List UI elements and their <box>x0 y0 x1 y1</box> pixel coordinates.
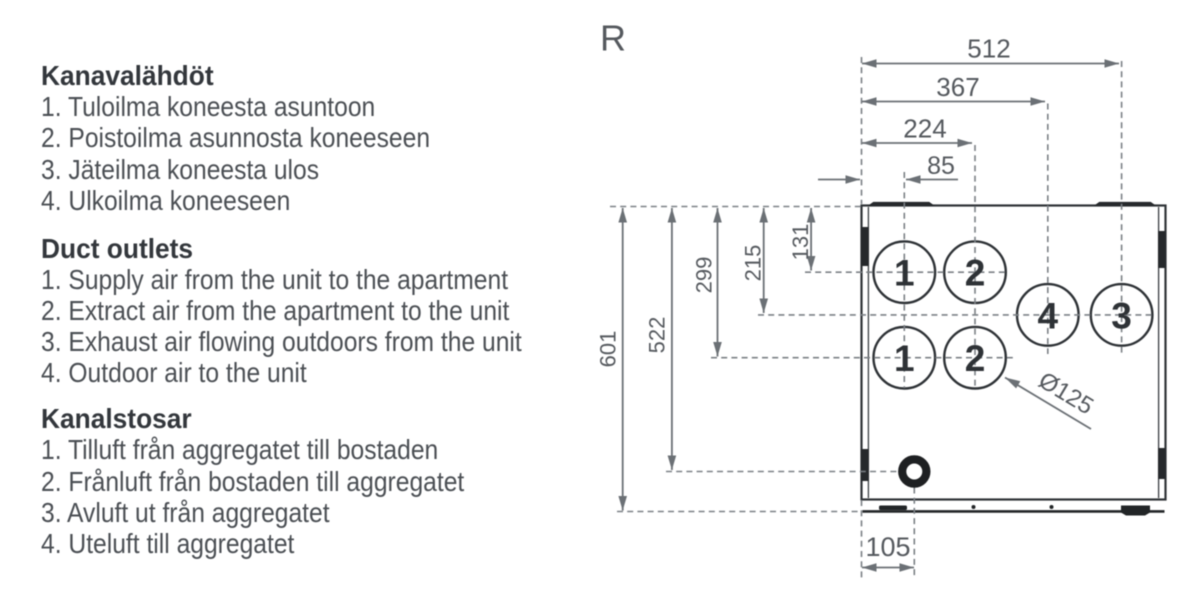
svg-text:2: 2 <box>965 338 986 379</box>
svg-text:105: 105 <box>865 532 910 562</box>
svg-text:2: 2 <box>965 253 986 294</box>
svg-text:1: 1 <box>894 338 915 379</box>
svg-text:R: R <box>600 18 626 59</box>
svg-text:224: 224 <box>903 114 946 144</box>
svg-text:131: 131 <box>788 224 813 261</box>
svg-text:85: 85 <box>927 152 955 180</box>
svg-text:367: 367 <box>936 72 979 102</box>
svg-text:512: 512 <box>967 34 1010 64</box>
svg-text:299: 299 <box>692 257 717 294</box>
svg-text:1: 1 <box>894 253 915 294</box>
svg-text:601: 601 <box>596 331 621 368</box>
svg-text:3: 3 <box>1111 295 1132 336</box>
svg-text:4: 4 <box>1038 295 1059 336</box>
svg-text:215: 215 <box>741 245 766 282</box>
svg-text:522: 522 <box>645 317 670 354</box>
